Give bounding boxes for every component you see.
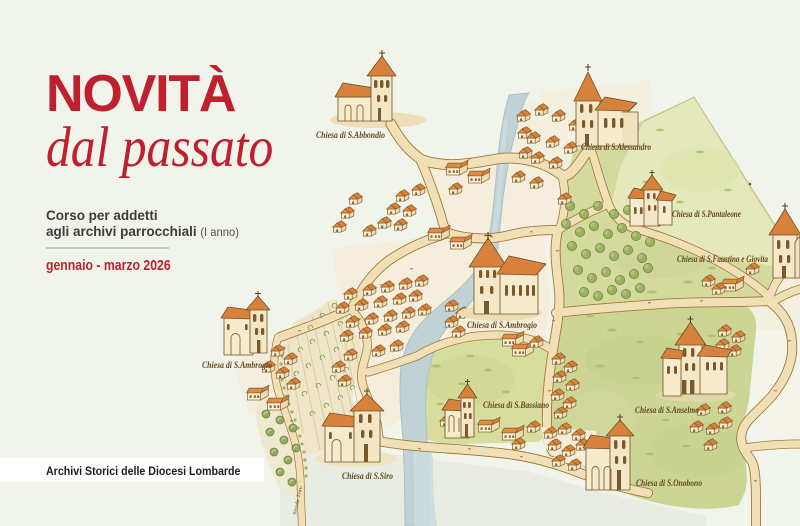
svg-text:Chiesa di S.Faustino e Giovita: Chiesa di S.Faustino e Giovita — [677, 254, 768, 264]
svg-text:Chiesa di S.Pantaleone: Chiesa di S.Pantaleone — [672, 209, 741, 219]
svg-text:Chiesa di S.Alessandro: Chiesa di S.Alessandro — [581, 142, 651, 152]
svg-text:Chiesa di S.Abbondio: Chiesa di S.Abbondio — [316, 130, 385, 140]
svg-text:Chiesa di S.Bassiano: Chiesa di S.Bassiano — [483, 400, 549, 410]
svg-text:Chiesa di S.Siro: Chiesa di S.Siro — [342, 471, 393, 481]
svg-text:Chiesa di S.Onobono: Chiesa di S.Onobono — [636, 478, 702, 488]
svg-text:Chiesa di S.Anselmo: Chiesa di S.Anselmo — [635, 405, 699, 415]
svg-text:Chiesa di S.Ambrogio: Chiesa di S.Ambrogio — [202, 360, 272, 370]
svg-text:Chiesa di S.Ambrogio: Chiesa di S.Ambrogio — [467, 320, 537, 330]
